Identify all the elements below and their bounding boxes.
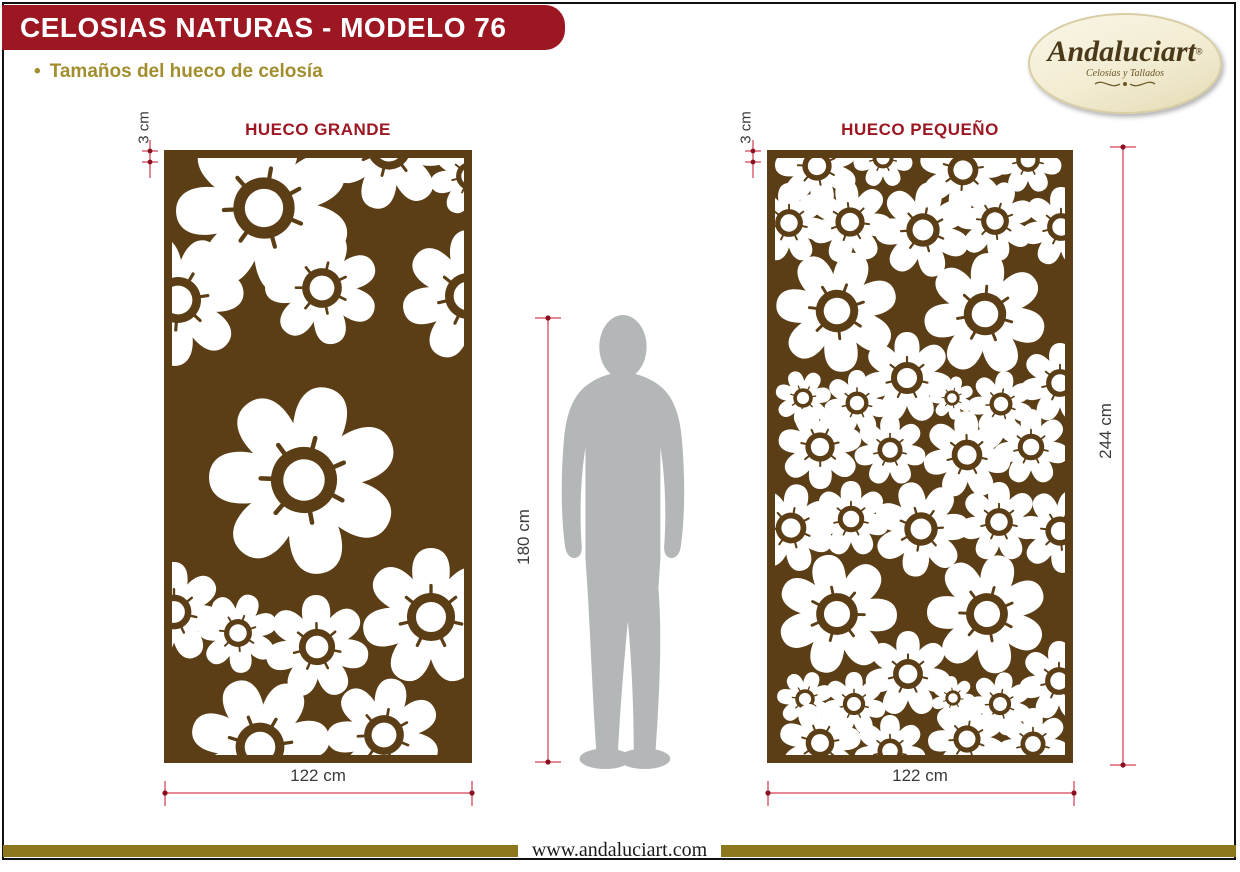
figure-height-label: 180 cm — [514, 507, 534, 567]
page-subtitle: •Tamaños del hueco de celosía — [34, 61, 323, 83]
edge-dim-marker-grande — [140, 140, 162, 180]
footer-bar-right — [721, 845, 1236, 857]
width-dim-grande — [160, 779, 480, 809]
page-title: CELOSIAS NATURAS - MODELO 76 — [2, 12, 506, 44]
panel-pequeno-drawing — [767, 150, 1073, 763]
header-bar: CELOSIAS NATURAS - MODELO 76 — [2, 5, 565, 50]
spec-sheet: CELOSIAS NATURAS - MODELO 76 •Tamaños de… — [0, 0, 1240, 872]
width-dim-pequeno — [763, 779, 1081, 809]
registered-mark: ® — [1196, 47, 1203, 57]
footer: www.andaluciart.com — [3, 844, 1236, 858]
brand-tagline: Celosías y Tallados — [1086, 68, 1164, 79]
human-silhouette — [550, 314, 688, 770]
height-dim-figure — [533, 310, 563, 770]
logo-flourish-icon — [1093, 79, 1157, 89]
website-url: www.andaluciart.com — [532, 839, 707, 862]
edge-dim-marker-pequeno — [743, 140, 765, 180]
panel-height-label: 244 cm — [1096, 401, 1116, 461]
brand-name: Andaluciart — [1047, 35, 1195, 68]
footer-bar-left — [3, 845, 518, 857]
panel-grande-title: HUECO GRANDE — [164, 120, 472, 140]
brand-logo: Andaluciart® Celosías y Tallados — [1028, 13, 1222, 114]
panel-pequeno-title: HUECO PEQUEÑO — [767, 120, 1073, 140]
subtitle-text: Tamaños del hueco de celosía — [50, 61, 323, 82]
panel-grande-drawing — [164, 150, 472, 763]
bullet-icon: • — [34, 61, 41, 82]
